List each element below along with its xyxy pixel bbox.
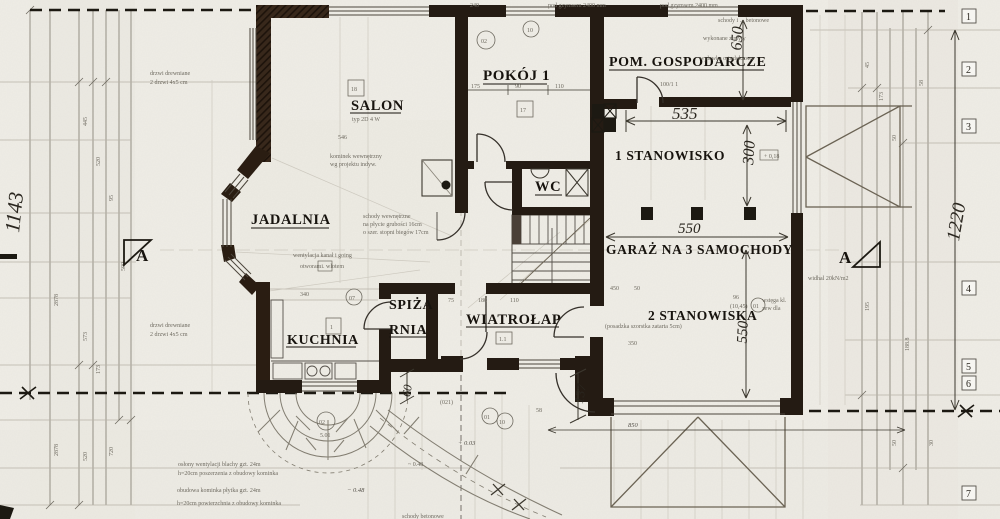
svg-text:546: 546: [338, 135, 347, 141]
svg-text:100/1 1: 100/1 1: [660, 82, 678, 88]
svg-text:typ 2D 4 W: typ 2D 4 W: [352, 117, 380, 123]
svg-text:wylewka ortodoksowe: wylewka ortodoksowe: [700, 56, 754, 62]
svg-text:6: 6: [966, 379, 971, 390]
svg-text:520: 520: [83, 452, 89, 461]
svg-text:~ 0.48: ~ 0.48: [408, 462, 423, 468]
svg-text:445: 445: [83, 117, 89, 126]
svg-text:widhal 20kN/m2: widhal 20kN/m2: [808, 276, 849, 282]
svg-text:18: 18: [351, 87, 357, 93]
svg-text:110: 110: [555, 84, 564, 90]
svg-text:96: 96: [733, 295, 739, 301]
svg-text:RNIA: RNIA: [389, 323, 427, 338]
svg-text:45: 45: [865, 62, 871, 68]
svg-text:58: 58: [536, 408, 542, 414]
svg-text:300: 300: [740, 140, 759, 166]
svg-text:drzwi drewniane: drzwi drewniane: [150, 71, 190, 77]
svg-text:schody i ... betonowe: schody i ... betonowe: [718, 18, 769, 24]
svg-text:wstęga kl.: wstęga kl.: [762, 298, 787, 304]
svg-text:850: 850: [628, 422, 639, 429]
svg-text:obudowa kominka płytka gzt. 24: obudowa kominka płytka gzt. 24m: [177, 488, 261, 494]
svg-text:schody betonowe: schody betonowe: [402, 514, 444, 519]
svg-text:2 drzwi 4x5 cm: 2 drzwi 4x5 cm: [150, 332, 188, 338]
svg-text:90: 90: [515, 84, 521, 90]
svg-text:75: 75: [448, 298, 454, 304]
svg-text:POKÓJ 1: POKÓJ 1: [483, 67, 550, 84]
svg-text:10: 10: [527, 28, 533, 34]
svg-text:+ 0,18: + 0,18: [764, 154, 779, 160]
svg-text:173: 173: [879, 92, 885, 101]
svg-text:7: 7: [966, 489, 971, 500]
svg-text:173: 173: [96, 365, 102, 374]
svg-text:wg projektu indyw.: wg projektu indyw.: [330, 162, 377, 168]
svg-text:180: 180: [478, 298, 487, 304]
svg-text:SPIŻA: SPIŻA: [389, 296, 434, 313]
svg-text:(posadzka szorstka zatarta 5cm: (posadzka szorstka zatarta 5cm): [605, 323, 682, 330]
svg-text:720: 720: [109, 447, 115, 456]
svg-text:JADALNIA: JADALNIA: [251, 212, 331, 228]
svg-text:1143: 1143: [0, 191, 28, 234]
svg-text:WC: WC: [535, 179, 561, 195]
svg-text:SALON: SALON: [351, 98, 404, 114]
svg-text:+ 0.03: + 0.03: [458, 440, 476, 447]
svg-text:340: 340: [300, 292, 309, 298]
svg-text:5.01: 5.01: [320, 433, 331, 439]
svg-text:wentylacja kanał i going: wentylacja kanał i going: [293, 253, 352, 259]
svg-text:4: 4: [966, 284, 971, 295]
svg-text:50: 50: [634, 286, 640, 292]
svg-text:01: 01: [753, 304, 759, 310]
svg-text:(10,45): (10,45): [730, 303, 748, 310]
svg-text:1: 1: [966, 12, 971, 23]
svg-text:07: 07: [349, 296, 355, 302]
svg-text:110: 110: [510, 298, 519, 304]
svg-text:pod gzymsem 2400 mm: pod gzymsem 2400 mm: [660, 3, 718, 9]
svg-text:10: 10: [499, 420, 505, 426]
svg-text:A: A: [136, 246, 149, 265]
svg-text:kominek wewnętrzny: kominek wewnętrzny: [330, 154, 382, 160]
svg-text:1: 1: [330, 325, 333, 331]
svg-text:drzwi drewniane: drzwi drewniane: [150, 323, 190, 329]
svg-text:188.8: 188.8: [905, 338, 911, 352]
svg-text:1 STANOWISKO: 1 STANOWISKO: [615, 148, 725, 163]
svg-text:h=20cm poszerzenia z obudowy k: h=20cm poszerzenia z obudowy kominka: [178, 471, 278, 477]
svg-text:schody wewnętrzne: schody wewnętrzne: [363, 214, 411, 220]
svg-text:− 0.48: − 0.48: [347, 487, 365, 494]
svg-text:h=20cm powierzchnia z obudowy: h=20cm powierzchnia z obudowy kominka: [177, 501, 281, 507]
svg-text:pod gzymsem 2400 mm: pod gzymsem 2400 mm: [548, 3, 606, 9]
svg-text:02: 02: [481, 39, 487, 45]
svg-text:2878: 2878: [54, 444, 60, 456]
svg-text:2 STANOWISKA: 2 STANOWISKA: [648, 308, 757, 323]
svg-text:osłony wentylacji blachy gzt.: osłony wentylacji blachy gzt. 24m: [178, 462, 261, 468]
svg-text:A: A: [839, 248, 852, 267]
svg-text:na płycie grubości 16cm: na płycie grubości 16cm: [363, 222, 422, 228]
svg-text:KUCHNIA: KUCHNIA: [287, 333, 359, 348]
svg-text:535: 535: [672, 104, 698, 123]
svg-text:450: 450: [610, 286, 619, 292]
svg-text:520: 520: [96, 157, 102, 166]
svg-text:30: 30: [929, 440, 935, 446]
svg-text:wykonane z płyty: wykonane z płyty: [703, 36, 746, 42]
svg-text:01: 01: [484, 415, 490, 421]
svg-text:02: 02: [319, 420, 325, 426]
svg-text:58: 58: [919, 80, 925, 86]
svg-text:otworami. wlotem: otworami. wlotem: [300, 264, 344, 270]
svg-text:GARAŻ NA 3 SAMOCHODY: GARAŻ NA 3 SAMOCHODY: [606, 242, 793, 257]
svg-text:2878: 2878: [54, 294, 60, 306]
svg-text:o szer. stopni biegów 17cm: o szer. stopni biegów 17cm: [363, 230, 429, 236]
svg-text:(021): (021): [440, 399, 453, 406]
svg-text:50: 50: [892, 440, 898, 446]
svg-text:240: 240: [470, 3, 479, 9]
svg-text:350: 350: [628, 341, 637, 347]
svg-text:175: 175: [471, 84, 480, 90]
svg-text:3: 3: [966, 122, 971, 133]
svg-text:195: 195: [865, 302, 871, 311]
svg-text:2: 2: [966, 65, 971, 76]
svg-text:550: 550: [735, 320, 752, 344]
svg-text:50: 50: [892, 135, 898, 141]
svg-text:550: 550: [678, 221, 701, 237]
svg-text:1.1: 1.1: [499, 337, 507, 343]
svg-text:2 drzwi 4x5 cm: 2 drzwi 4x5 cm: [150, 80, 188, 86]
svg-text:95: 95: [109, 195, 115, 201]
svg-text:5: 5: [966, 362, 971, 373]
svg-text:17: 17: [520, 108, 526, 114]
svg-text:60: 60: [399, 384, 415, 398]
svg-text:573: 573: [83, 332, 89, 341]
svg-text:WIATROŁAP: WIATROŁAP: [466, 312, 561, 328]
